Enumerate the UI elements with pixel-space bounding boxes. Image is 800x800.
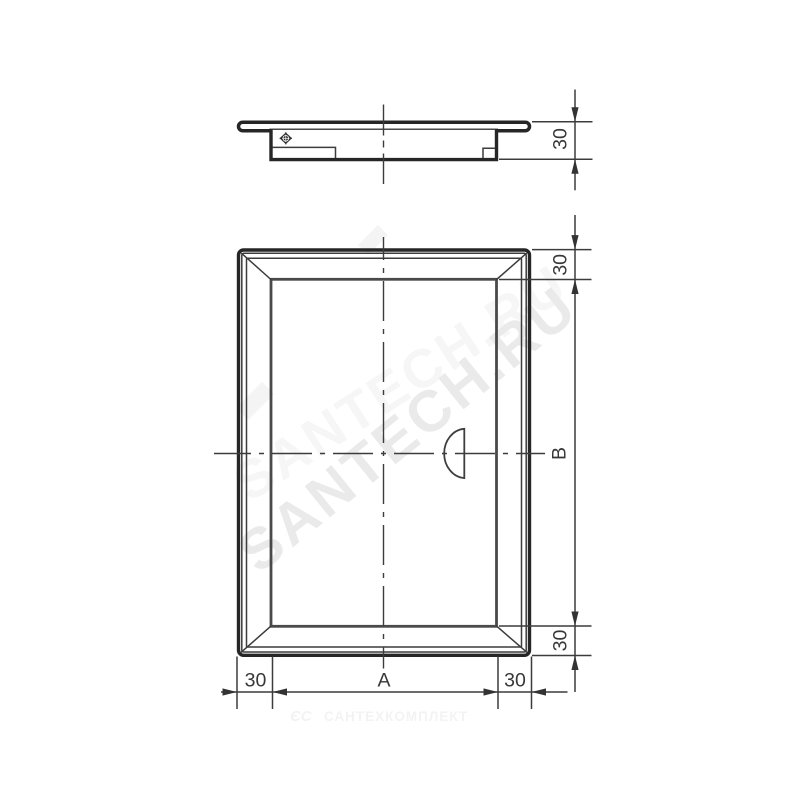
svg-text:B: B: [549, 447, 571, 460]
svg-text:30: 30: [550, 128, 572, 150]
svg-text:ЄС: ЄС: [290, 708, 313, 725]
svg-text:A: A: [377, 670, 390, 692]
svg-text:30: 30: [504, 670, 526, 692]
svg-text:30: 30: [550, 254, 572, 276]
svg-text:САНТЕХКОМПЛЕКТ: САНТЕХКОМПЛЕКТ: [324, 709, 468, 724]
svg-text:30: 30: [550, 630, 572, 652]
svg-text:30: 30: [245, 670, 267, 692]
